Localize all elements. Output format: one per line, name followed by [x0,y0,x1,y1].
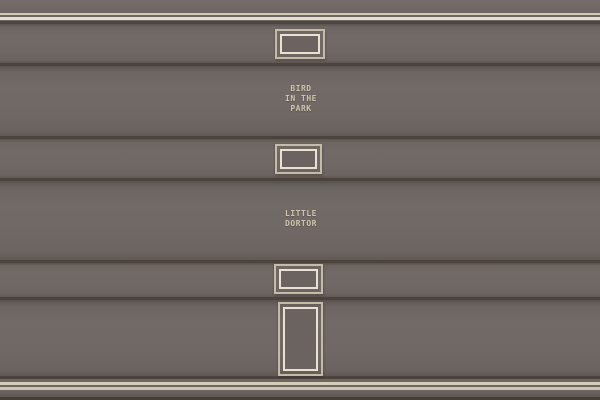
top-trim-line-lower [0,17,600,20]
window-middle-inner-frame [280,149,317,169]
window-top-inner-frame [280,34,320,54]
sign-line: IN THE [221,94,381,104]
top-trim-line-upper [0,13,600,15]
bottom-wall-band [0,390,600,397]
sign-bird-in-the-park: BIRD IN THE PARK [221,84,381,114]
window-top[interactable] [275,29,325,59]
top-wall-band [0,0,600,13]
sign-line: LITTLE [221,209,381,219]
panel-separator [0,376,600,379]
sign-little-dortor: LITTLE DORTOR [221,209,381,229]
door-inner-frame [283,307,318,371]
sign-line: BIRD [221,84,381,94]
window-middle[interactable] [275,144,322,174]
sign-line: PARK [221,104,381,114]
window-lower[interactable] [274,264,323,294]
window-lower-inner-frame [279,269,318,289]
building-facade: BIRD IN THE PARK LITTLE DORTOR [0,0,600,400]
bottom-trim-line-upper [0,382,600,385]
door[interactable] [278,302,323,376]
sign-line: DORTOR [221,219,381,229]
